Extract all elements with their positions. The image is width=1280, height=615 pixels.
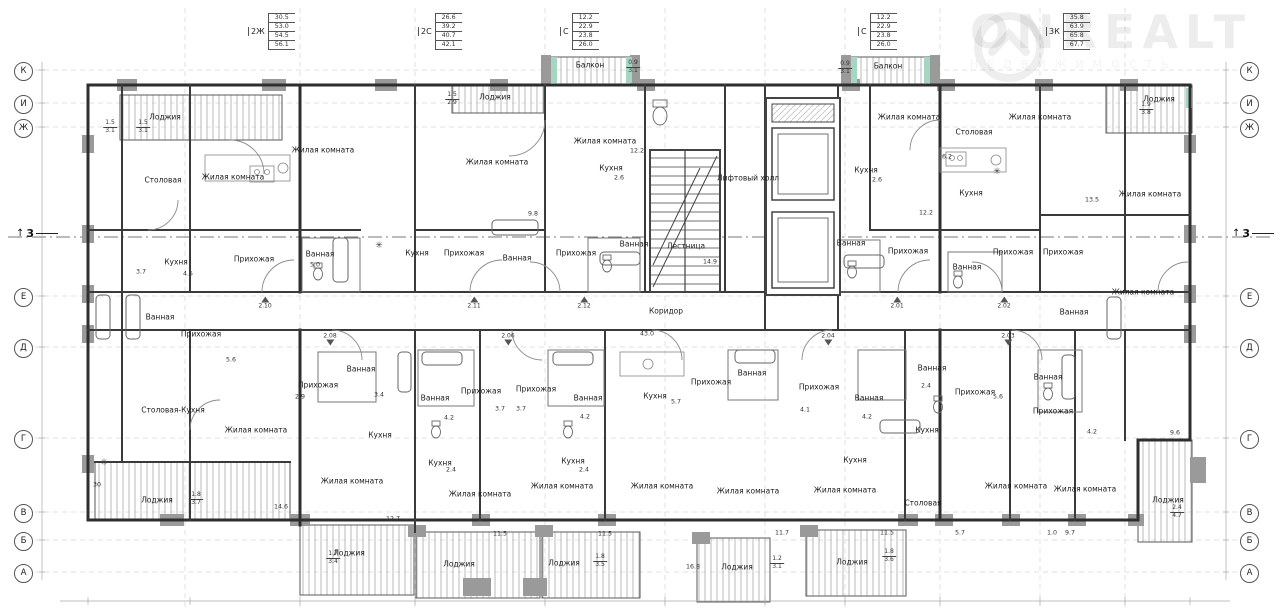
elevator-shaft <box>766 98 840 295</box>
floorplan-canvas: ONREALT НЕДВИЖИМОСТЬ 2Ж30.553.054.556.12… <box>0 0 1280 615</box>
plan-drawing <box>0 0 1280 615</box>
dimension-lines <box>39 62 1230 605</box>
staircase <box>650 150 720 292</box>
outer-walls <box>88 85 1190 525</box>
